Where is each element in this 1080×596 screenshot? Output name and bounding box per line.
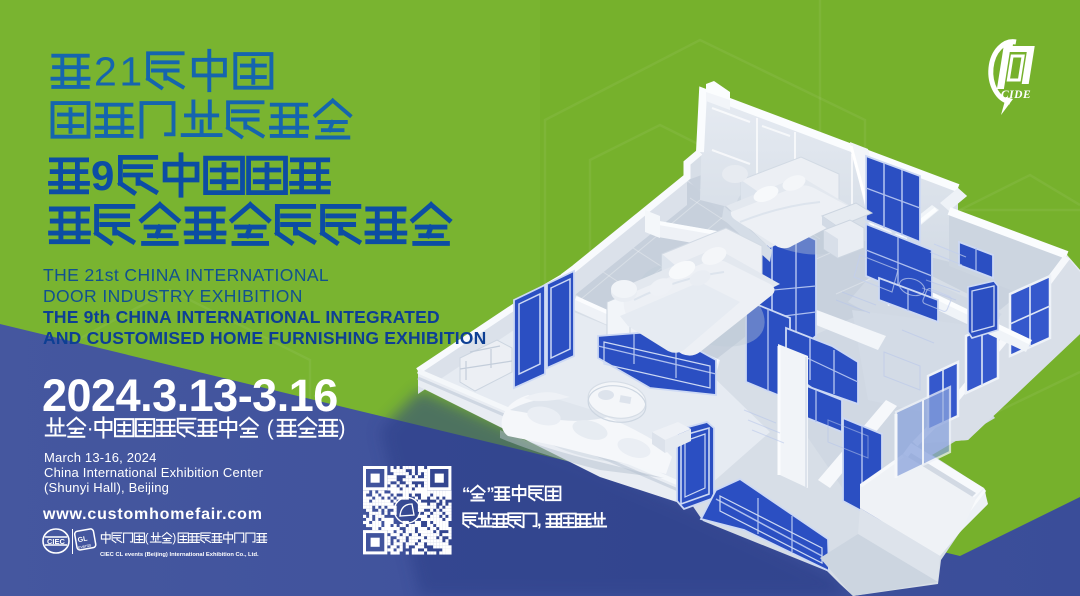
svg-text:(: ( [145,533,149,545]
svg-text:,: , [537,512,542,530]
svg-text:·: · [87,417,94,440]
svg-text:): ) [339,417,346,440]
svg-text:CIEC: CIEC [47,537,66,546]
svg-text:): ) [172,533,176,545]
svg-text:(: ( [267,417,274,440]
svg-text:1: 1 [119,48,142,94]
svg-text:CIEC CL events (Beijing) Inter: CIEC CL events (Beijing) International E… [100,552,259,558]
svg-text:9: 9 [91,152,114,199]
svg-text:www.customhomefair.com: www.customhomefair.com [42,506,263,523]
svg-text:(Shunyi Hall), Beijing: (Shunyi Hall), Beijing [44,480,169,495]
svg-text:2024.3.13-3.16: 2024.3.13-3.16 [42,370,338,421]
svg-text:THE 21st CHINA INTERNATIONAL: THE 21st CHINA INTERNATIONAL [43,265,329,285]
svg-text:DOOR INDUSTRY EXHIBITION: DOOR INDUSTRY EXHIBITION [43,286,303,306]
svg-text:“: “ [462,485,470,503]
svg-text:”: ” [486,485,494,503]
svg-text:THE 9th CHINA INTERNATIONAL IN: THE 9th CHINA INTERNATIONAL INTEGRATED [43,307,440,327]
svg-text:China International Exhibition: China International Exhibition Center [44,465,264,480]
svg-text:AND CUSTOMISED HOME FURNISHING: AND CUSTOMISED HOME FURNISHING EXHIBITIO… [43,328,486,348]
svg-text:March 13-16, 2024: March 13-16, 2024 [44,450,157,465]
svg-text:2: 2 [94,48,117,94]
svg-text:CIDE: CIDE [1001,89,1031,101]
